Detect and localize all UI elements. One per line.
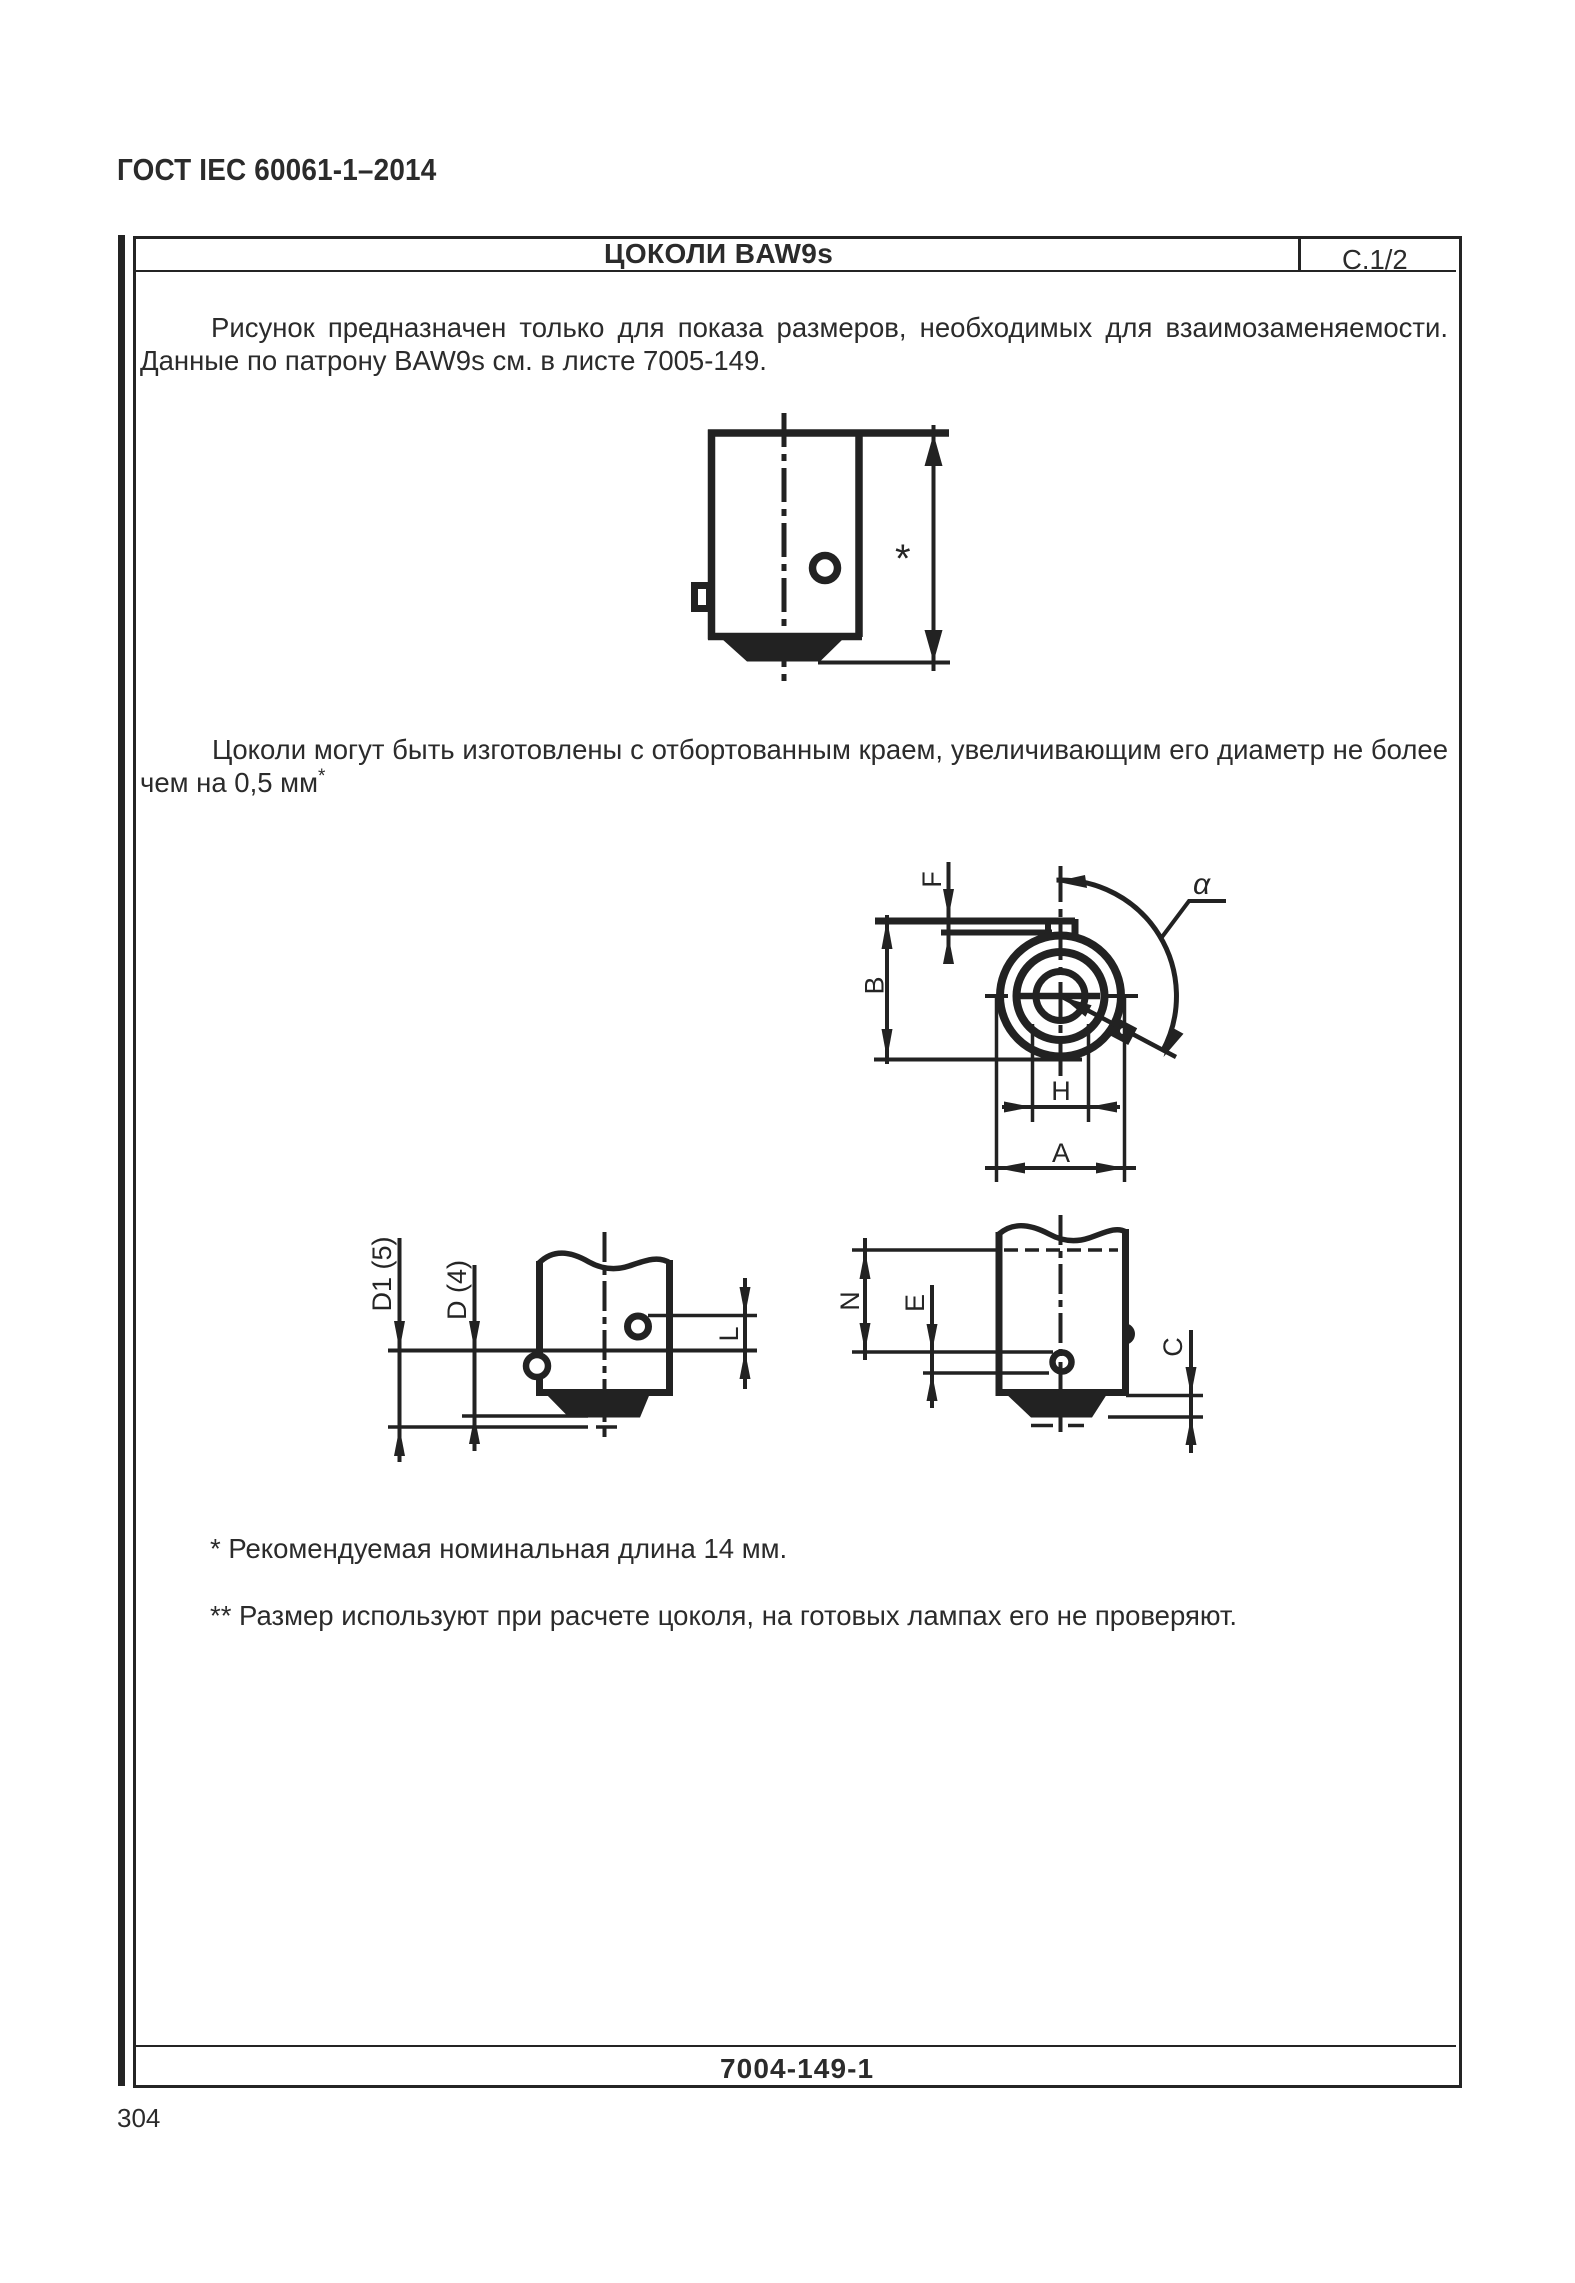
svg-text:F: F — [917, 871, 947, 888]
svg-text:E: E — [900, 1294, 930, 1312]
svg-text:L: L — [714, 1326, 744, 1341]
svg-text:*: * — [895, 537, 911, 581]
svg-text:H: H — [1051, 1076, 1071, 1106]
svg-text:α: α — [1193, 868, 1211, 901]
svg-text:D (4): D (4) — [442, 1260, 472, 1320]
svg-text:D1 (5): D1 (5) — [367, 1236, 397, 1311]
svg-text:A: A — [1052, 1138, 1070, 1168]
svg-text:C: C — [1158, 1337, 1188, 1357]
svg-text:N: N — [835, 1291, 865, 1311]
svg-text:B: B — [860, 976, 890, 994]
